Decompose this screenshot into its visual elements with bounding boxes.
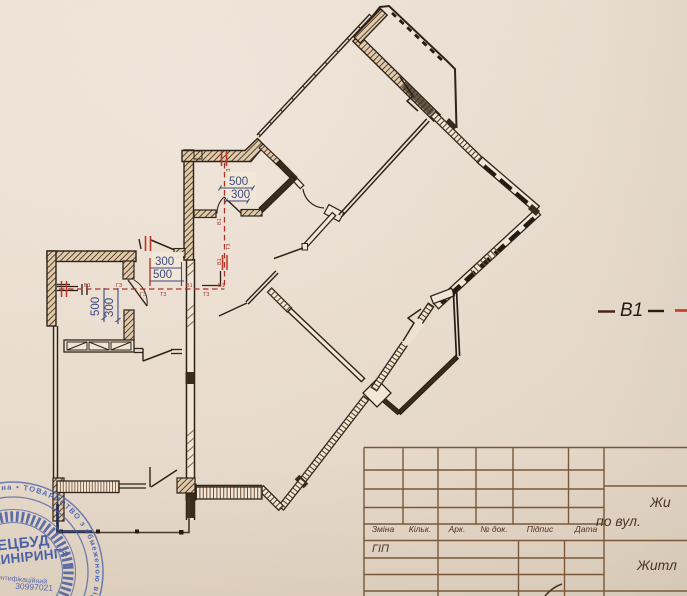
svg-text:30997021: 30997021 [15, 581, 54, 593]
svg-text:В1: В1 [84, 283, 91, 289]
svg-text:300: 300 [155, 256, 174, 268]
svg-text:Підпис: Підпис [527, 524, 554, 534]
svg-text:500: 500 [90, 297, 102, 316]
svg-text:Т3: Т3 [160, 292, 166, 298]
svg-text:ГЗ: ГЗ [140, 292, 147, 298]
svg-text:300: 300 [231, 189, 250, 201]
svg-text:В1: В1 [217, 258, 223, 265]
svg-text:В1: В1 [186, 283, 193, 289]
svg-text:№ док.: № док. [480, 524, 507, 534]
svg-text:Арк.: Арк. [448, 524, 466, 534]
svg-text:Житл: Житл [636, 557, 677, 573]
svg-text:Кільк.: Кільк. [409, 524, 432, 534]
svg-text:В1: В1 [218, 283, 225, 289]
svg-text:Жи: Жи [649, 494, 671, 510]
svg-text:ГЗ: ГЗ [116, 283, 123, 289]
svg-text:300: 300 [104, 298, 116, 317]
svg-text:Дата: Дата [574, 524, 598, 534]
svg-text:Т3: Т3 [203, 292, 209, 298]
svg-text:Т3: Т3 [226, 244, 232, 250]
svg-text:В1: В1 [620, 300, 643, 321]
svg-text:В1: В1 [217, 218, 223, 225]
svg-text:ГІП: ГІП [372, 543, 389, 555]
svg-text:500: 500 [153, 269, 172, 281]
svg-text:Зміна: Зміна [372, 524, 395, 534]
svg-text:500: 500 [229, 176, 248, 188]
svg-text:по вул.: по вул. [596, 513, 641, 529]
